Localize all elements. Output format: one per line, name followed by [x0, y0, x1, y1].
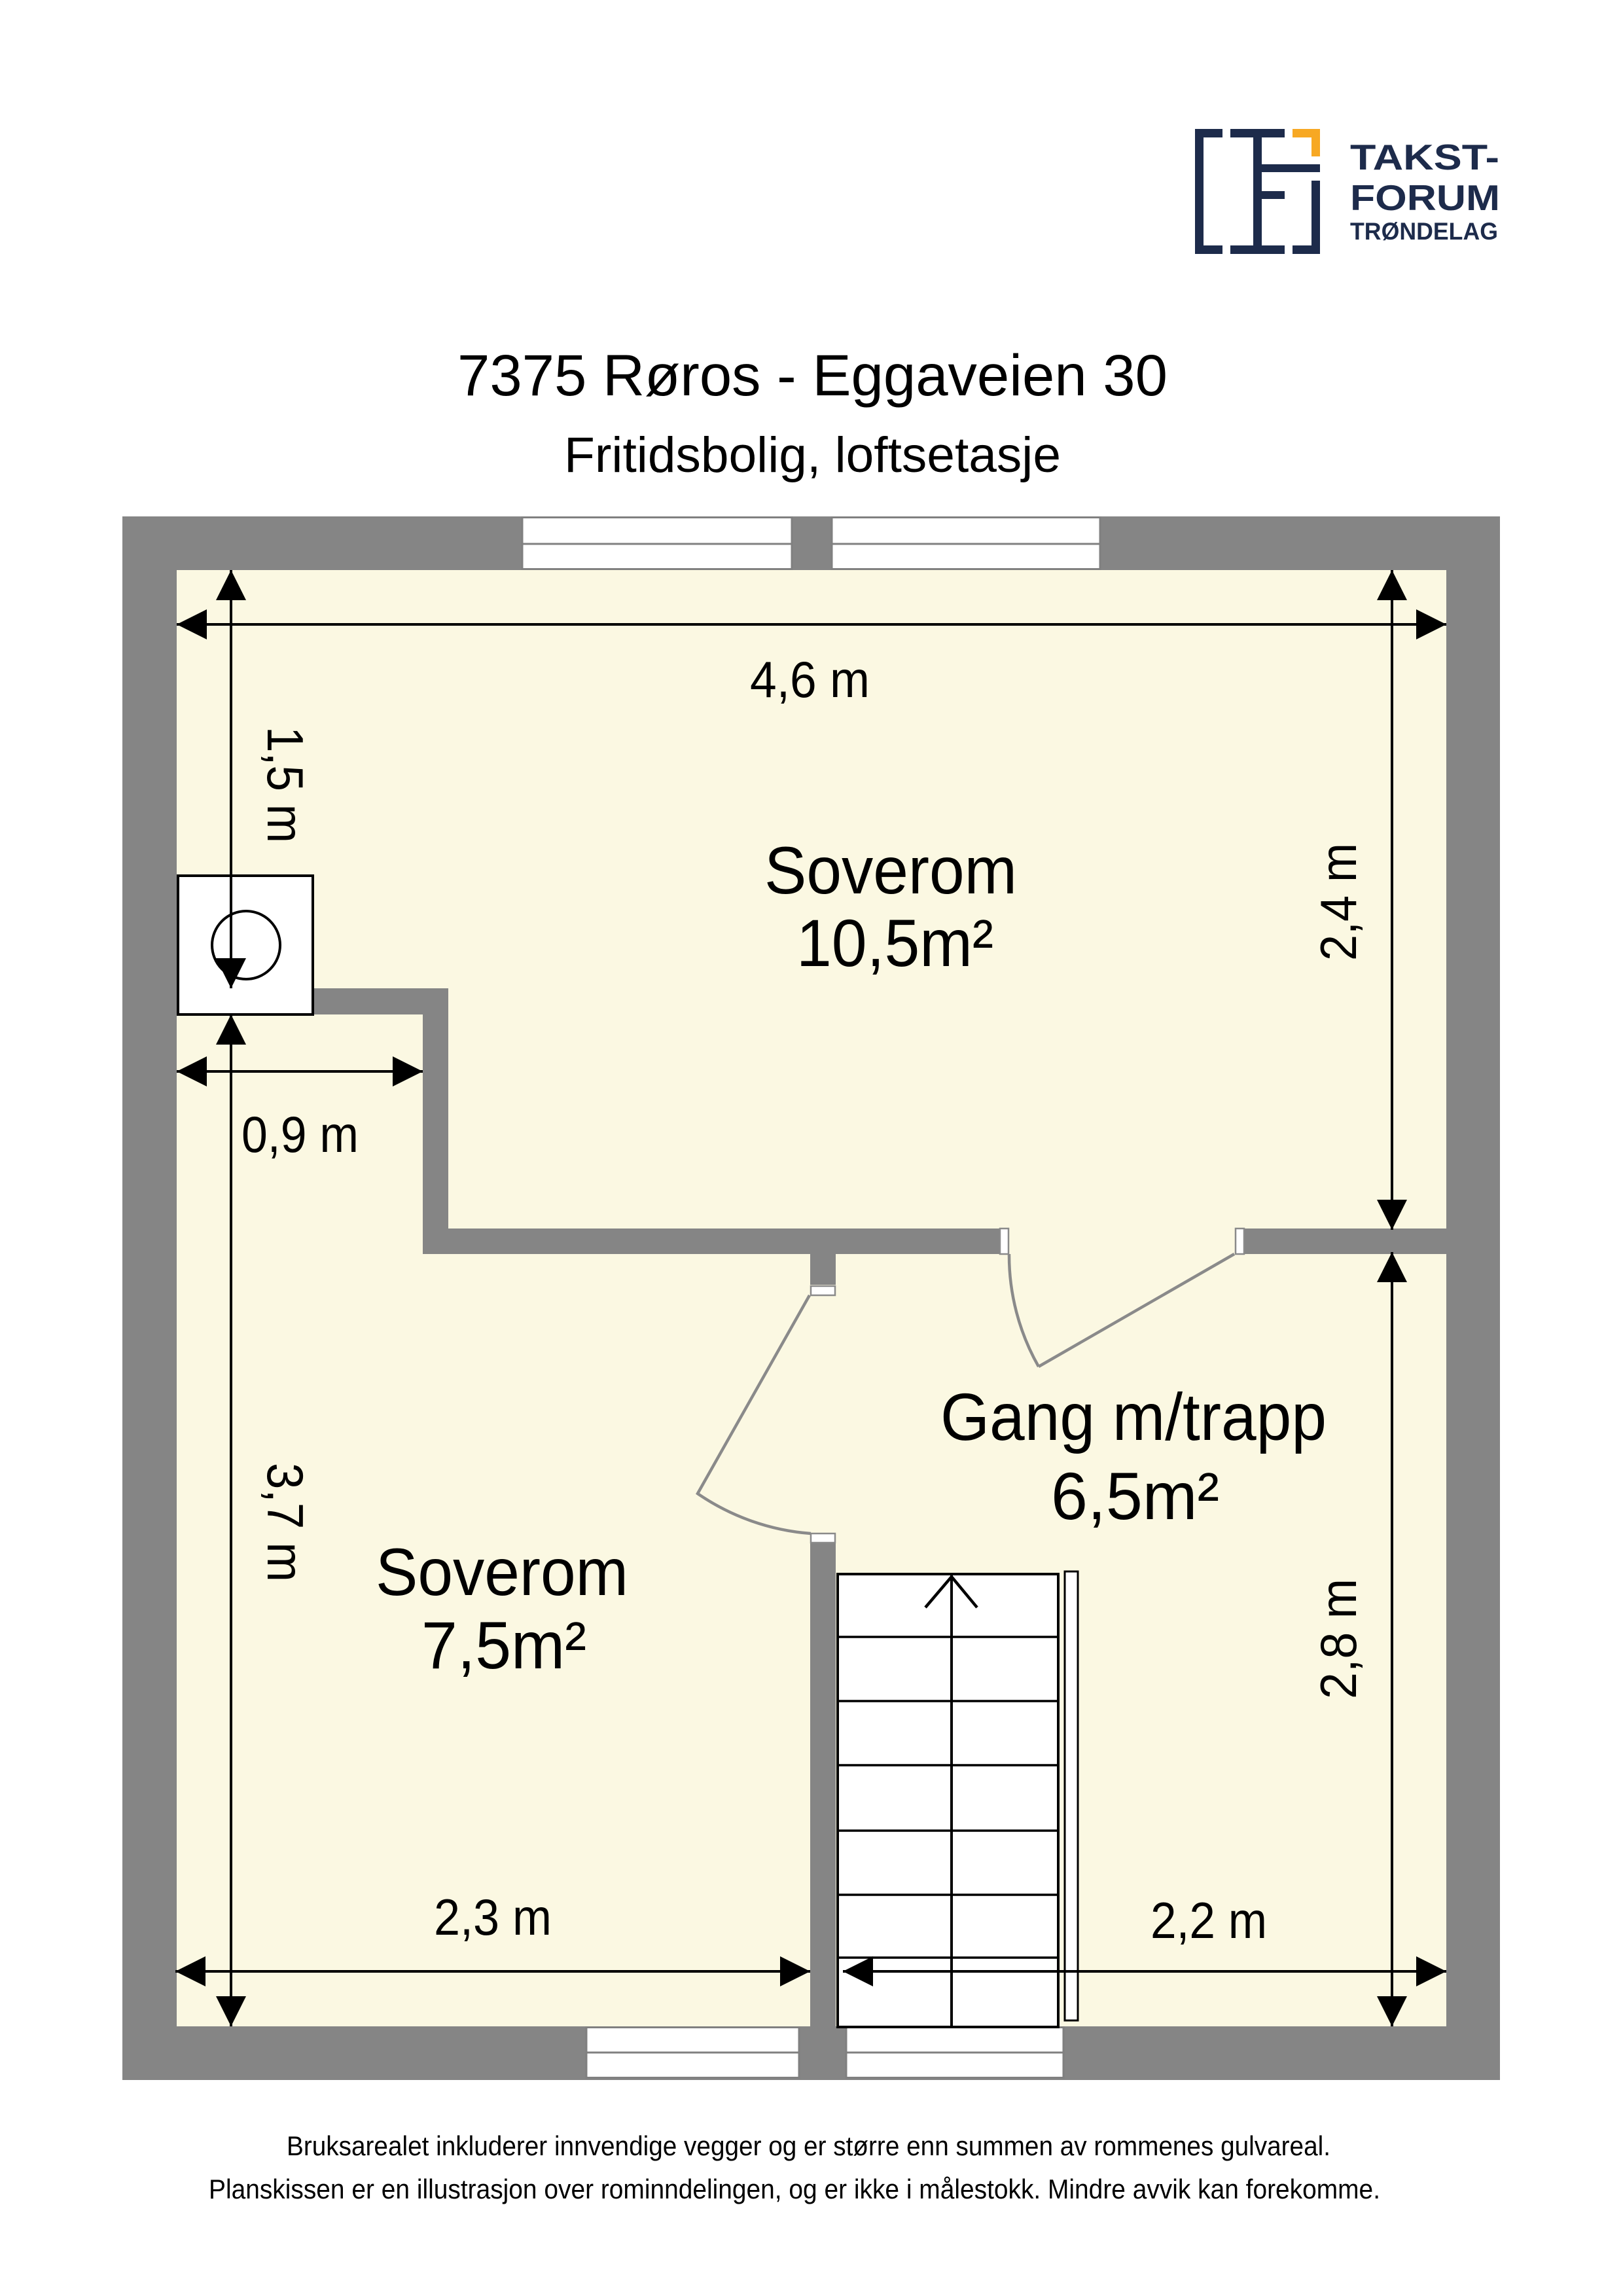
svg-text:1,5 m: 1,5 m: [257, 726, 314, 843]
svg-text:7,5m²: 7,5m²: [421, 1608, 586, 1683]
svg-text:Bruksarealet inkluderer innven: Bruksarealet inkluderer innvendige vegge…: [287, 2130, 1330, 2161]
svg-text:4,6 m: 4,6 m: [750, 651, 870, 708]
svg-text:7375 Røros - Eggaveien 30: 7375 Røros - Eggaveien 30: [457, 342, 1168, 408]
svg-text:2,8 m: 2,8 m: [1310, 1579, 1367, 1699]
svg-text:Gang m/trapp: Gang m/trapp: [940, 1380, 1327, 1454]
svg-text:Fritidsbolig, loftsetasje: Fritidsbolig, loftsetasje: [564, 427, 1061, 483]
svg-text:Soverom: Soverom: [764, 833, 1017, 908]
svg-text:TAKST-: TAKST-: [1350, 137, 1499, 177]
svg-text:0,9 m: 0,9 m: [241, 1105, 359, 1163]
svg-text:6,5m²: 6,5m²: [1051, 1459, 1219, 1534]
svg-text:2,3 m: 2,3 m: [434, 1888, 552, 1946]
svg-text:TRØNDELAG: TRØNDELAG: [1350, 218, 1498, 245]
svg-text:10,5m²: 10,5m²: [796, 906, 993, 980]
svg-text:2,4 m: 2,4 m: [1310, 843, 1367, 961]
svg-text:Planskissen er en illustrasjon: Planskissen er en illustrasjon over romi…: [209, 2174, 1380, 2204]
svg-text:Soverom: Soverom: [376, 1535, 628, 1609]
svg-text:2,2 m: 2,2 m: [1150, 1892, 1267, 1949]
svg-text:FORUM: FORUM: [1350, 177, 1500, 218]
svg-text:3,7 m: 3,7 m: [257, 1463, 314, 1582]
